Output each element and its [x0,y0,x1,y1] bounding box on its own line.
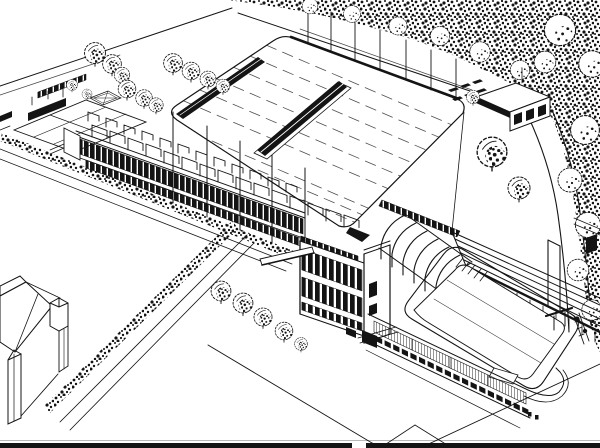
house-chimney-pillar [8,350,21,424]
house-bay [50,298,68,331]
architectural-drawing [0,0,600,448]
architectural-drawing-page [0,0,600,448]
